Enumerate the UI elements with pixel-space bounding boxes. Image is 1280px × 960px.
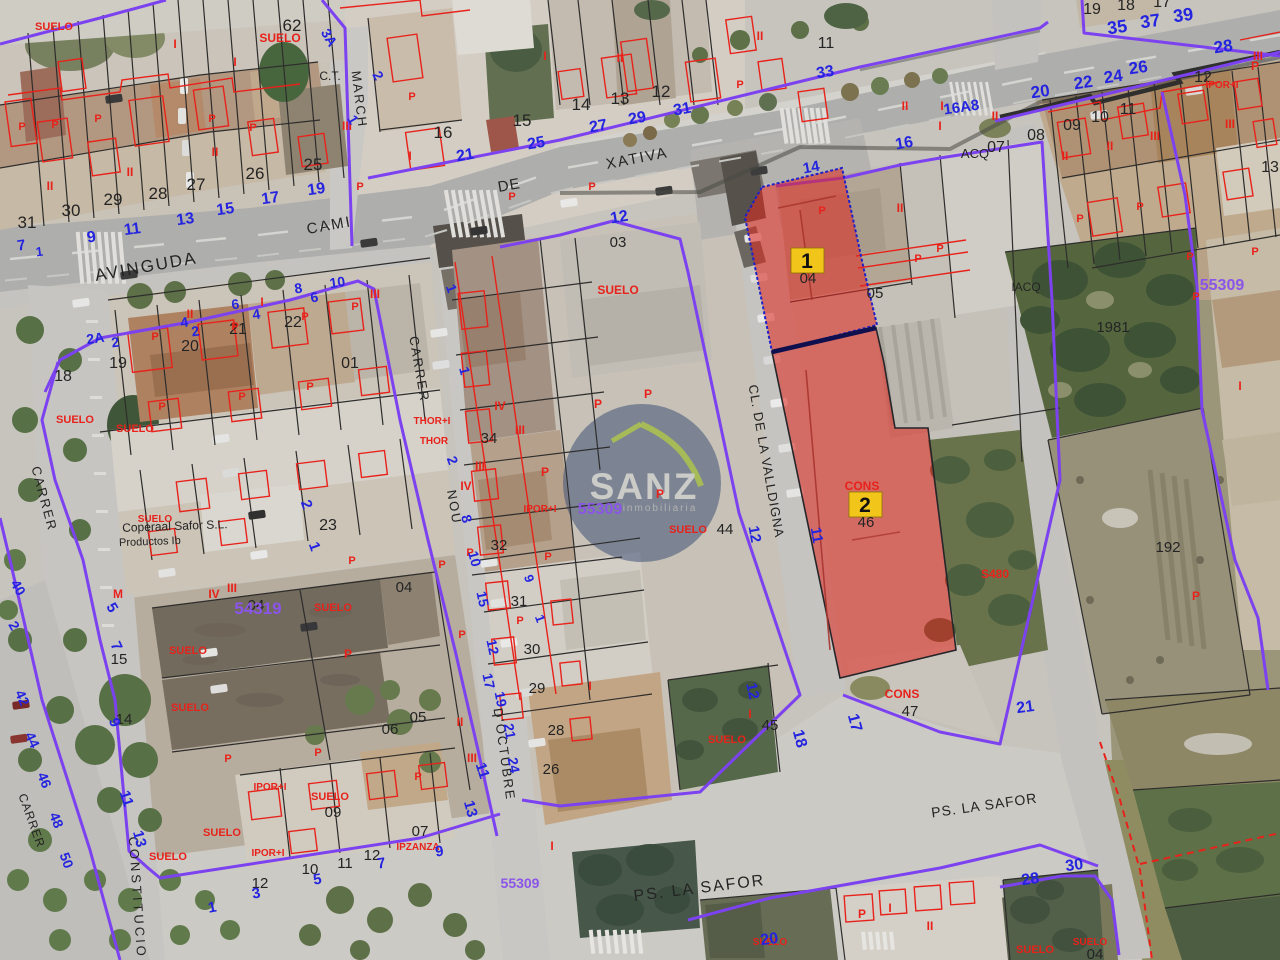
svg-text:IPOR+I: IPOR+I	[523, 504, 556, 515]
svg-text:39: 39	[1172, 4, 1195, 27]
svg-text:13: 13	[175, 210, 195, 229]
svg-text:29: 29	[627, 109, 648, 129]
svg-text:28: 28	[1213, 36, 1234, 57]
svg-text:31: 31	[672, 100, 693, 120]
svg-text:10: 10	[328, 273, 346, 291]
svg-text:P: P	[588, 181, 595, 193]
svg-text:S480: S480	[981, 567, 1009, 581]
svg-text:P: P	[458, 629, 465, 641]
svg-text:15: 15	[513, 111, 532, 130]
svg-text:04: 04	[396, 579, 413, 596]
svg-text:20: 20	[1030, 81, 1051, 102]
svg-text:I: I	[938, 119, 941, 133]
svg-text:II: II	[1107, 139, 1114, 153]
svg-text:30: 30	[524, 641, 541, 658]
svg-text:SUELO: SUELO	[669, 524, 707, 536]
svg-text:P: P	[936, 243, 943, 255]
svg-text:07: 07	[412, 823, 429, 840]
svg-text:14: 14	[572, 95, 591, 114]
svg-text:24: 24	[505, 756, 523, 774]
svg-text:19: 19	[306, 180, 326, 199]
svg-text:P: P	[344, 647, 352, 661]
svg-text:12: 12	[609, 208, 630, 228]
svg-text:32: 32	[491, 537, 508, 554]
svg-text:13: 13	[1261, 159, 1279, 176]
svg-text:09: 09	[325, 804, 342, 821]
svg-text:24: 24	[1103, 66, 1125, 88]
svg-text:THOR: THOR	[420, 436, 449, 447]
svg-text:54319: 54319	[234, 599, 281, 618]
svg-text:04: 04	[1087, 946, 1104, 960]
svg-text:P: P	[818, 205, 825, 217]
svg-text:P: P	[249, 122, 256, 134]
svg-text:17: 17	[260, 189, 280, 208]
svg-text:II: II	[457, 715, 464, 729]
svg-text:IPOR+I: IPOR+I	[1205, 80, 1238, 91]
svg-text:21: 21	[501, 722, 519, 740]
svg-text:11: 11	[123, 220, 142, 239]
svg-text:22: 22	[1073, 72, 1094, 93]
svg-text:P: P	[231, 321, 238, 333]
svg-text:SUELO: SUELO	[259, 31, 300, 45]
svg-text:11: 11	[337, 855, 353, 872]
svg-text:18: 18	[54, 368, 72, 385]
svg-text:I: I	[888, 901, 891, 915]
svg-text:CONS: CONS	[885, 687, 920, 701]
svg-text:THOR+I: THOR+I	[414, 416, 451, 427]
svg-text:08: 08	[1027, 127, 1045, 144]
svg-text:II: II	[902, 99, 909, 113]
svg-text:192: 192	[1155, 539, 1180, 556]
svg-text:P: P	[1251, 246, 1258, 258]
svg-text:P: P	[1136, 201, 1143, 213]
svg-text:44: 44	[717, 521, 734, 538]
svg-text:P: P	[208, 113, 215, 125]
svg-text:III: III	[1225, 117, 1235, 131]
svg-text:20: 20	[181, 338, 199, 355]
svg-text:P: P	[238, 391, 245, 403]
svg-text:CONS: CONS	[845, 479, 880, 493]
svg-text:inmobiliaria: inmobiliaria	[623, 503, 698, 514]
svg-text:SUELO: SUELO	[169, 645, 207, 657]
svg-text:P: P	[544, 551, 551, 563]
svg-text:P: P	[914, 253, 921, 265]
svg-text:30: 30	[1064, 856, 1084, 875]
svg-text:19: 19	[109, 355, 127, 372]
svg-text:11: 11	[818, 35, 835, 52]
svg-text:IV: IV	[494, 399, 505, 413]
svg-text:III: III	[370, 287, 380, 301]
svg-text:P: P	[644, 387, 652, 401]
svg-text:II: II	[47, 179, 54, 193]
svg-text:26: 26	[246, 164, 265, 183]
svg-text:II: II	[897, 201, 904, 215]
svg-text:P: P	[351, 301, 358, 313]
svg-text:P: P	[314, 747, 321, 759]
svg-text:P: P	[656, 487, 664, 501]
svg-text:IV: IV	[460, 479, 471, 493]
svg-text:45: 45	[762, 717, 779, 734]
svg-text:IPOR+I: IPOR+I	[253, 782, 286, 793]
svg-text:I: I	[1238, 379, 1241, 393]
svg-text:III: III	[1150, 129, 1160, 143]
svg-text:16: 16	[434, 123, 453, 142]
svg-text:P: P	[356, 181, 363, 193]
svg-text:I: I	[543, 49, 546, 63]
svg-text:III: III	[515, 423, 525, 437]
svg-text:28: 28	[548, 722, 565, 739]
svg-text:III: III	[475, 459, 485, 473]
svg-text:21: 21	[455, 146, 476, 166]
svg-text:10: 10	[1091, 109, 1109, 126]
svg-text:P: P	[594, 397, 602, 411]
svg-text:2A: 2A	[85, 329, 105, 347]
svg-text:II: II	[927, 919, 934, 933]
svg-text:II: II	[757, 29, 764, 43]
svg-text:06: 06	[382, 721, 399, 738]
svg-text:P: P	[18, 121, 25, 133]
svg-text:I: I	[408, 149, 411, 163]
svg-text:19: 19	[492, 690, 510, 708]
svg-text:IV: IV	[208, 587, 219, 601]
svg-text:55309: 55309	[501, 875, 540, 891]
svg-text:16: 16	[894, 134, 915, 154]
svg-text:31: 31	[511, 593, 528, 610]
svg-text:P: P	[348, 555, 355, 567]
svg-text:SUELO: SUELO	[35, 21, 73, 33]
svg-text:1981: 1981	[1096, 319, 1129, 336]
svg-text:01: 01	[341, 355, 359, 372]
svg-text:III: III	[227, 581, 237, 595]
svg-text:P: P	[1186, 251, 1193, 263]
svg-text:SUELO: SUELO	[314, 602, 352, 614]
svg-text:03: 03	[610, 234, 627, 251]
svg-text:05: 05	[410, 709, 427, 726]
svg-text:Productos Ib: Productos Ib	[119, 535, 181, 549]
svg-text:P: P	[516, 615, 523, 627]
svg-text:11: 11	[807, 526, 826, 545]
svg-text:P: P	[306, 381, 313, 393]
svg-text:04: 04	[800, 270, 817, 287]
svg-text:M: M	[113, 587, 123, 601]
svg-text:II: II	[127, 165, 134, 179]
svg-text:ACQ: ACQ	[961, 146, 989, 161]
svg-text:15: 15	[111, 651, 128, 668]
svg-text:33: 33	[815, 63, 836, 83]
svg-text:P: P	[1251, 59, 1259, 73]
svg-text:47: 47	[902, 703, 919, 720]
svg-text:P: P	[301, 311, 308, 323]
svg-text:I: I	[233, 55, 236, 69]
svg-text:P: P	[858, 907, 866, 921]
svg-text:23: 23	[319, 517, 337, 534]
svg-text:P: P	[51, 119, 58, 131]
svg-text:C.T.: C.T.	[319, 69, 340, 83]
svg-text:27: 27	[588, 117, 609, 137]
svg-text:P: P	[224, 753, 231, 765]
svg-text:25: 25	[304, 155, 323, 174]
svg-text:SUELO: SUELO	[138, 514, 173, 525]
svg-text:55309: 55309	[1200, 277, 1245, 294]
svg-text:29: 29	[104, 190, 123, 209]
svg-text:SUELO: SUELO	[1073, 937, 1108, 948]
svg-text:IPOR+I: IPOR+I	[251, 848, 284, 859]
svg-text:05: 05	[867, 285, 884, 302]
svg-text:26: 26	[543, 761, 560, 778]
svg-text:I: I	[588, 679, 591, 693]
svg-text:07: 07	[987, 139, 1005, 156]
svg-text:12: 12	[745, 525, 765, 544]
svg-text:SUELO: SUELO	[311, 791, 349, 803]
svg-text:II: II	[992, 109, 999, 123]
svg-text:P: P	[508, 191, 515, 203]
svg-text:28: 28	[149, 184, 168, 203]
svg-text:18: 18	[1117, 0, 1135, 14]
svg-text:15: 15	[215, 200, 235, 219]
svg-text:P: P	[158, 401, 165, 413]
svg-text:II: II	[1062, 149, 1069, 163]
svg-text:P: P	[1192, 291, 1199, 303]
svg-text:P: P	[541, 465, 549, 479]
svg-text:P: P	[736, 79, 743, 91]
svg-text:III: III	[467, 751, 477, 765]
svg-text:I: I	[748, 707, 751, 721]
svg-text:46: 46	[858, 514, 875, 531]
svg-text:P: P	[408, 91, 415, 103]
svg-text:29: 29	[529, 680, 546, 697]
svg-text:26: 26	[1128, 57, 1149, 78]
svg-text:09: 09	[1063, 117, 1081, 134]
svg-text:P: P	[1192, 589, 1200, 603]
svg-text:SUELO: SUELO	[708, 734, 746, 746]
svg-text:SUELO: SUELO	[171, 702, 209, 714]
svg-text:SUELO: SUELO	[149, 851, 187, 863]
svg-text:34: 34	[481, 430, 498, 447]
svg-text:19: 19	[1083, 1, 1101, 18]
svg-text:30: 30	[62, 201, 81, 220]
svg-text:P: P	[414, 771, 421, 783]
svg-text:11: 11	[1120, 101, 1137, 118]
svg-text:12: 12	[652, 82, 671, 101]
svg-text:12: 12	[742, 681, 762, 701]
svg-text:I: I	[260, 295, 263, 309]
svg-text:13: 13	[611, 89, 630, 108]
svg-text:P: P	[94, 113, 101, 125]
svg-text:35: 35	[1106, 16, 1129, 39]
svg-text:P: P	[151, 331, 158, 343]
svg-text:22: 22	[284, 314, 302, 331]
svg-text:SUELO: SUELO	[1016, 944, 1054, 956]
svg-text:27: 27	[187, 175, 206, 194]
svg-text:SUELO: SUELO	[116, 423, 154, 435]
svg-text:IACQ: IACQ	[1011, 280, 1040, 294]
svg-text:20: 20	[759, 930, 779, 949]
svg-text:SUELO: SUELO	[203, 827, 241, 839]
svg-text:II: II	[212, 145, 219, 159]
svg-text:SUELO: SUELO	[597, 283, 638, 297]
svg-text:II: II	[617, 51, 624, 65]
svg-text:31: 31	[18, 213, 37, 232]
svg-text:25: 25	[526, 134, 547, 154]
svg-text:55309: 55309	[578, 501, 623, 518]
svg-text:21: 21	[1015, 698, 1035, 717]
svg-text:SUELO: SUELO	[56, 414, 94, 426]
svg-text:P: P	[1076, 213, 1083, 225]
svg-text:I: I	[550, 839, 553, 853]
svg-text:P: P	[438, 559, 445, 571]
svg-text:I: I	[173, 37, 176, 51]
svg-text:28: 28	[1020, 870, 1040, 889]
svg-text:37: 37	[1139, 10, 1162, 33]
